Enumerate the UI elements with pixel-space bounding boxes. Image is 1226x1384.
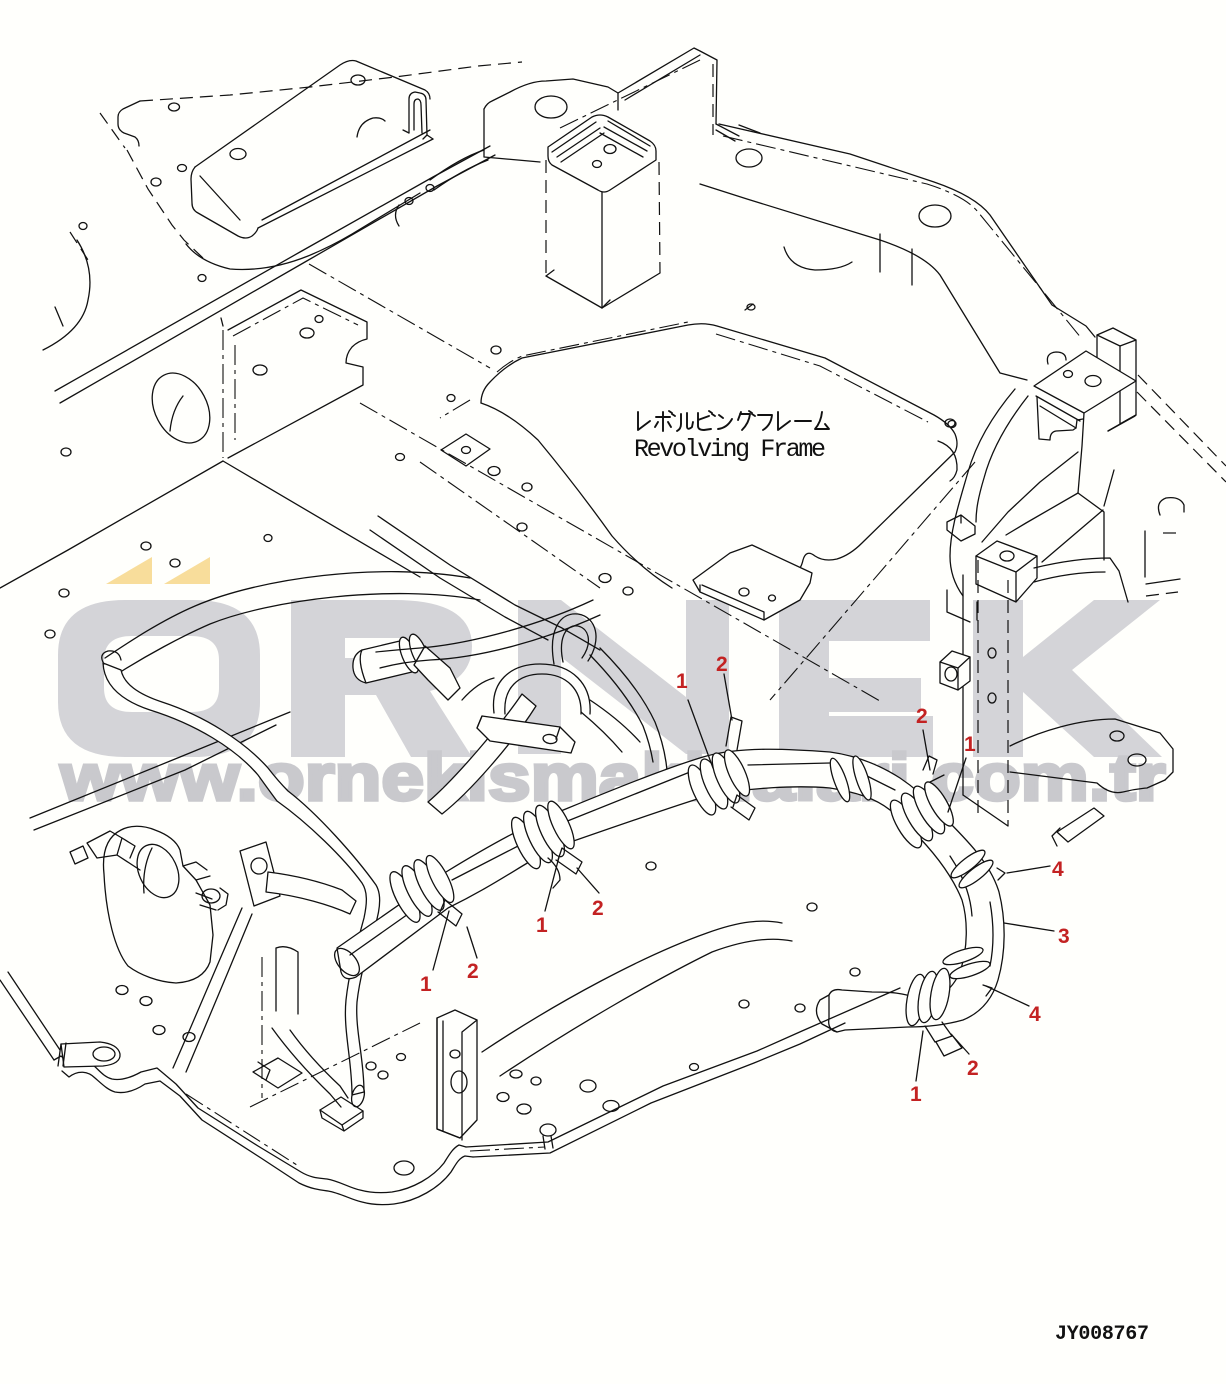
svg-text:2: 2 (592, 897, 604, 920)
svg-text:1: 1 (964, 733, 976, 756)
svg-text:2: 2 (916, 705, 928, 728)
svg-text:1: 1 (420, 973, 432, 996)
svg-text:1: 1 (536, 914, 548, 937)
svg-text:1: 1 (676, 670, 688, 693)
svg-text:4: 4 (1029, 1003, 1041, 1026)
svg-text:2: 2 (967, 1057, 979, 1080)
svg-text:3: 3 (1058, 925, 1070, 948)
svg-text:JY008767: JY008767 (1055, 1323, 1149, 1346)
svg-text:Revolving Frame: Revolving Frame (634, 435, 826, 464)
svg-text:2: 2 (716, 653, 728, 676)
svg-text:2: 2 (467, 960, 479, 983)
svg-text:4: 4 (1052, 858, 1064, 881)
svg-text:1: 1 (910, 1083, 922, 1106)
